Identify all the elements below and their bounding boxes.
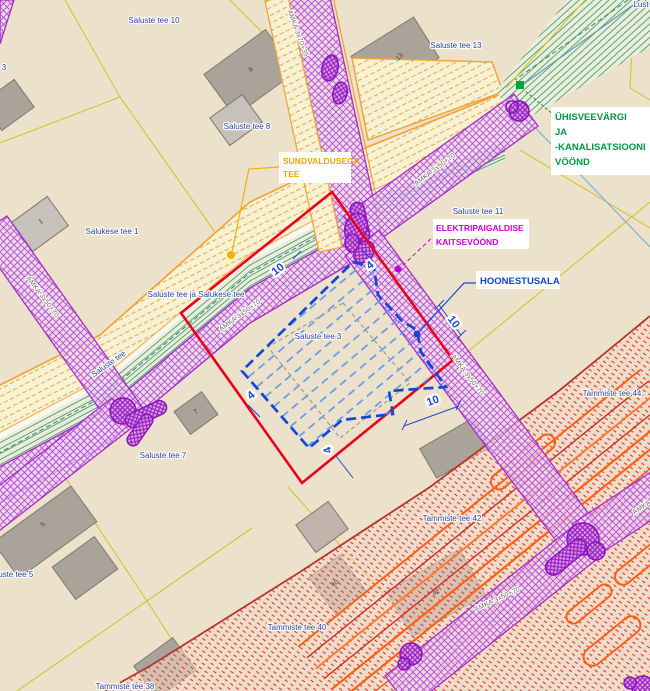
parcel-label: Tammiste tee 44	[583, 389, 642, 398]
uvk-line4: VÖÖND	[555, 157, 590, 168]
uvk-line3: -KANALISATSIOONI	[555, 142, 646, 153]
parcel-label: Lust	[633, 0, 649, 9]
parcel-label: Saluste tee 8	[224, 122, 271, 131]
parcel-label: Tammiste tee 38	[96, 682, 155, 691]
hoonestusala-text: HOONESTUSALA	[480, 276, 560, 287]
sundvaldus-line2: TEE	[283, 169, 300, 179]
label-elektripaigaldise: ELEKTRIPAIGALDISE KAITSEVÖÖND	[433, 219, 529, 249]
label-sundvaldusega-tee: SUNDVALDUSEGA TEE	[279, 152, 360, 183]
junction-corner-southeast	[624, 676, 650, 691]
detail-plan-map: Saluste tee 10Saluste tee 13Saluste tee …	[0, 0, 650, 691]
elektri-dot	[395, 266, 402, 273]
parcel-label: Tammiste tee 40	[268, 623, 327, 632]
uvk-line1: ÜHISVEEVÄRGI	[555, 112, 627, 123]
parcel-label: Saluste tee 11	[453, 207, 504, 216]
label-hoonestusala: HOONESTUSALA	[476, 271, 560, 289]
elektri-line2: KAITSEVÖÖND	[436, 237, 498, 247]
parcel-label: Saluste tee ja Salukese tee	[148, 290, 246, 299]
parcel-label: 3	[2, 63, 7, 72]
parcel-label: Saluste tee 5	[0, 570, 34, 579]
parcel-label: Saluste tee 10	[128, 16, 180, 25]
parcel-label: Saluste tee 3	[295, 332, 342, 341]
sundvaldus-dot	[227, 251, 235, 259]
parcel-label: Saluste tee 13	[430, 41, 482, 50]
sundvaldus-line1: SUNDVALDUSEGA	[283, 156, 360, 166]
parcel-label: Salukese tee 1	[86, 227, 139, 236]
uvk-line2: JA	[555, 127, 567, 138]
hoonestusala-dot	[414, 331, 421, 338]
parcel-label: Saluste tee 7	[140, 451, 187, 460]
parcel-label: Tammiste tee 42	[423, 514, 482, 523]
uvk-marker-square	[516, 81, 524, 89]
elektri-line1: ELEKTRIPAIGALDISE	[436, 223, 524, 233]
label-uhisveevargi: ÜHISVEEVÄRGI JA -KANALISATSIOONI VÖÖND	[551, 107, 650, 175]
